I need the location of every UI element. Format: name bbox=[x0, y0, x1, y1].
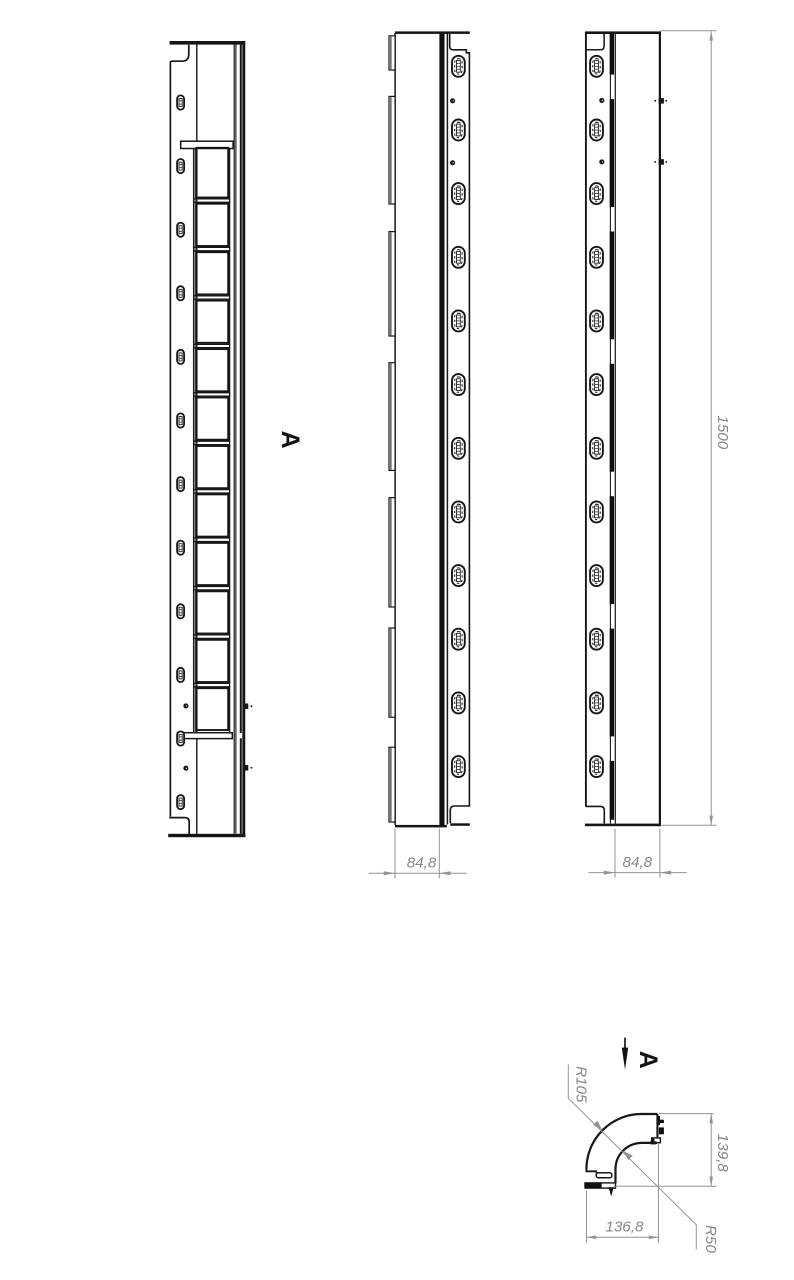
svg-text:136,8: 136,8 bbox=[605, 1219, 644, 1236]
svg-text:R105: R105 bbox=[573, 1066, 590, 1103]
svg-text:1500: 1500 bbox=[714, 415, 731, 449]
svg-text:84,8: 84,8 bbox=[623, 854, 653, 871]
svg-text:R50: R50 bbox=[702, 1225, 719, 1253]
svg-text:84,8: 84,8 bbox=[407, 855, 437, 872]
svg-text:A: A bbox=[634, 1051, 662, 1069]
svg-text:A: A bbox=[276, 431, 304, 449]
svg-text:139,8: 139,8 bbox=[714, 1134, 731, 1173]
